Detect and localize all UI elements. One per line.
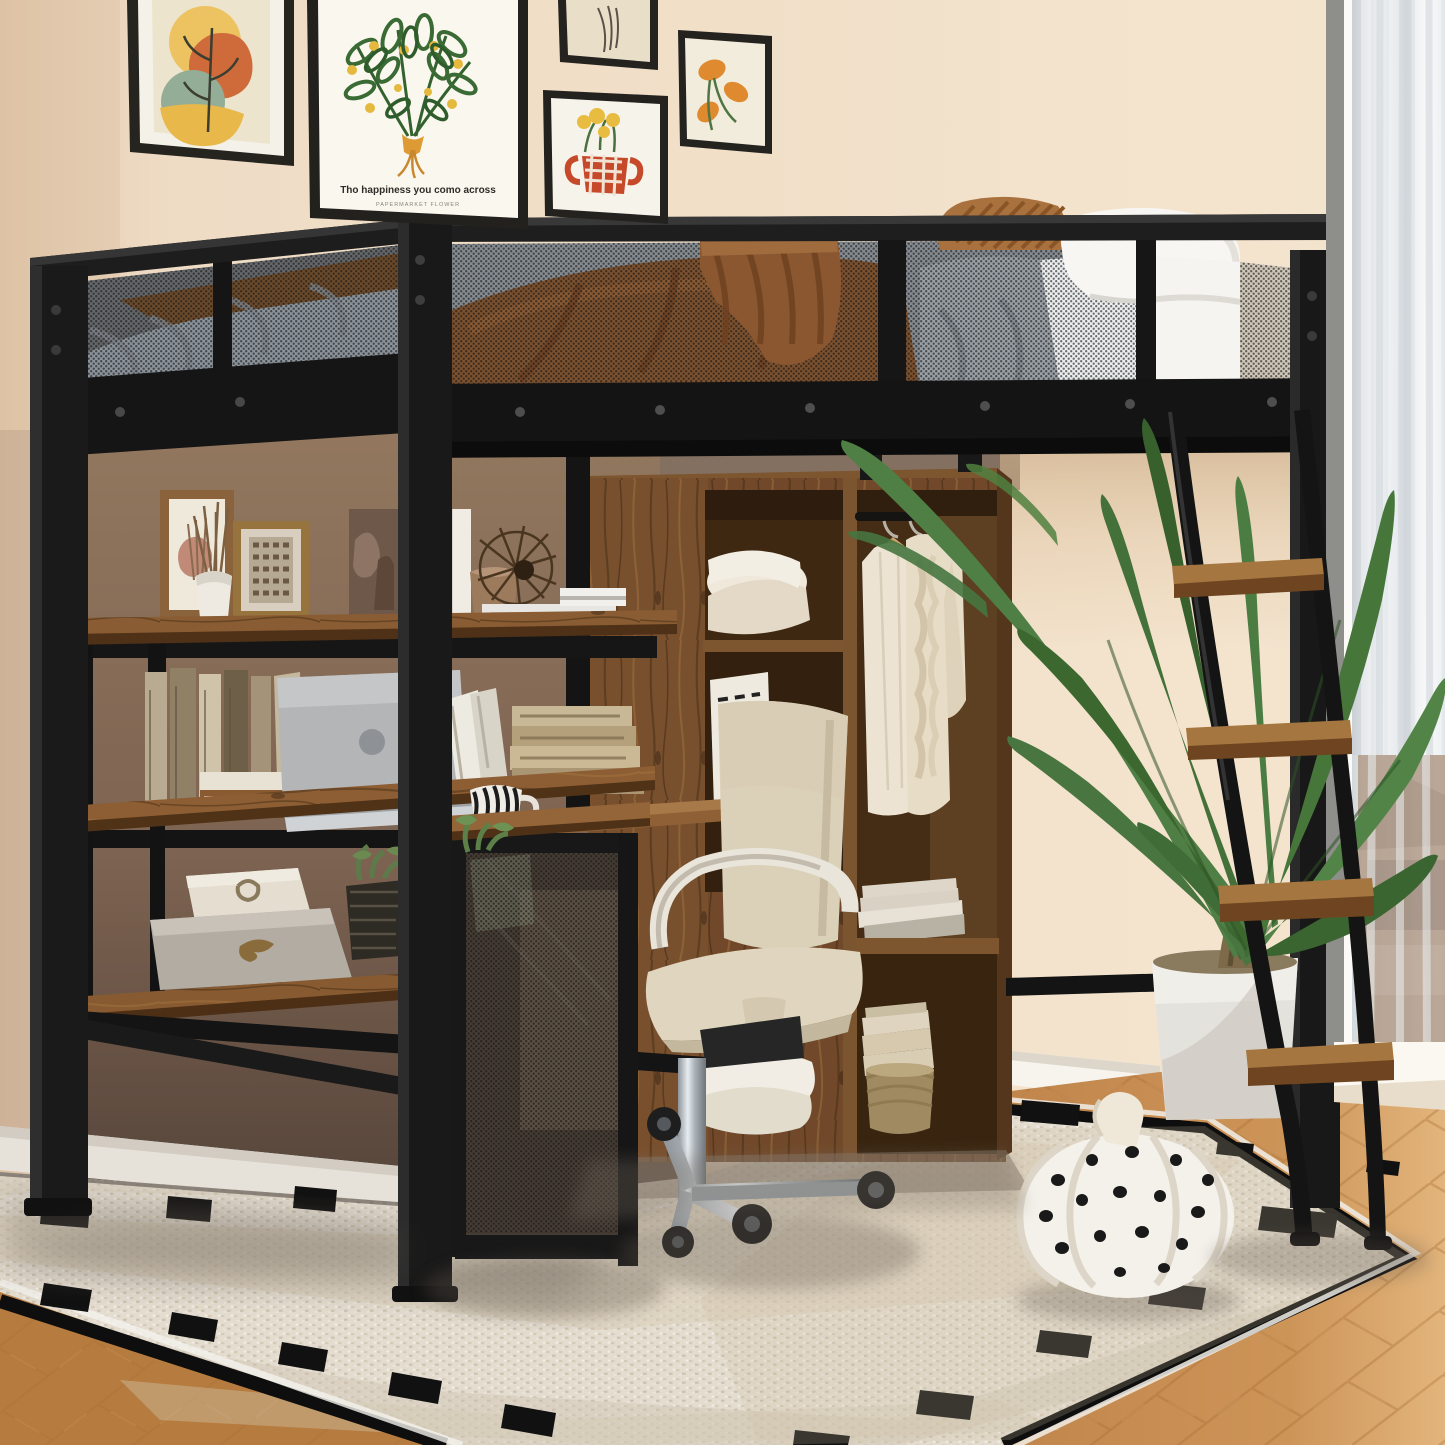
svg-text:PAPERMARKET FLOWER: PAPERMARKET FLOWER xyxy=(376,202,460,208)
svg-text:Tho happiness you como across: Tho happiness you como across xyxy=(340,185,496,196)
